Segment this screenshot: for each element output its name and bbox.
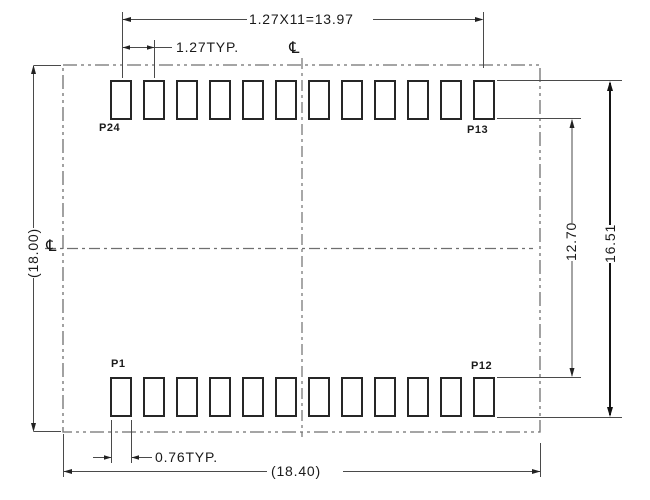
pad bbox=[407, 377, 429, 417]
pad bbox=[209, 377, 231, 417]
land-pattern-drawing: 1.27X11=13.97 1.27TYP. (18.00) 12.70 16.… bbox=[0, 0, 650, 500]
centerline-symbol-left: ℄ bbox=[44, 238, 58, 254]
pin-label-p1: P1 bbox=[111, 358, 125, 370]
pad bbox=[440, 80, 462, 120]
centerline-symbol-top: ℄ bbox=[287, 40, 301, 56]
pad bbox=[110, 377, 132, 417]
pin-label-p12: P12 bbox=[471, 360, 492, 372]
pad-row-bottom bbox=[110, 377, 495, 417]
dim-width-text: (18.40) bbox=[271, 464, 321, 478]
pad bbox=[473, 377, 495, 417]
pad bbox=[275, 377, 297, 417]
dim-pad-width-lines bbox=[93, 420, 152, 463]
pad bbox=[341, 377, 363, 417]
pad-row-top bbox=[110, 80, 495, 120]
dim-pad-width-text: 0.76TYP. bbox=[155, 450, 218, 464]
pad bbox=[242, 80, 264, 120]
pad bbox=[473, 80, 495, 120]
pad bbox=[143, 80, 165, 120]
dim-top-span-text: 1.27X11=13.97 bbox=[249, 12, 354, 26]
pin-label-p13: P13 bbox=[467, 124, 488, 136]
pad bbox=[308, 80, 330, 120]
dim-pitch-text: 1.27TYP. bbox=[176, 40, 239, 54]
pin-label-p24: P24 bbox=[99, 122, 120, 134]
dim-pitch-lines bbox=[122, 40, 172, 78]
dim-outer-span-text: 16.51 bbox=[603, 225, 617, 263]
pad bbox=[374, 80, 396, 120]
pad bbox=[209, 80, 231, 120]
pad bbox=[341, 80, 363, 120]
dim-height-text: (18.00) bbox=[26, 228, 40, 278]
pad bbox=[440, 377, 462, 417]
dim-inner-gap-text: 12.70 bbox=[564, 223, 578, 261]
drawing-lines bbox=[0, 0, 650, 500]
pad bbox=[407, 80, 429, 120]
pad bbox=[374, 377, 396, 417]
pad bbox=[308, 377, 330, 417]
pad bbox=[143, 377, 165, 417]
pad bbox=[275, 80, 297, 120]
pad bbox=[176, 377, 198, 417]
pad bbox=[242, 377, 264, 417]
pad bbox=[110, 80, 132, 120]
pad bbox=[176, 80, 198, 120]
